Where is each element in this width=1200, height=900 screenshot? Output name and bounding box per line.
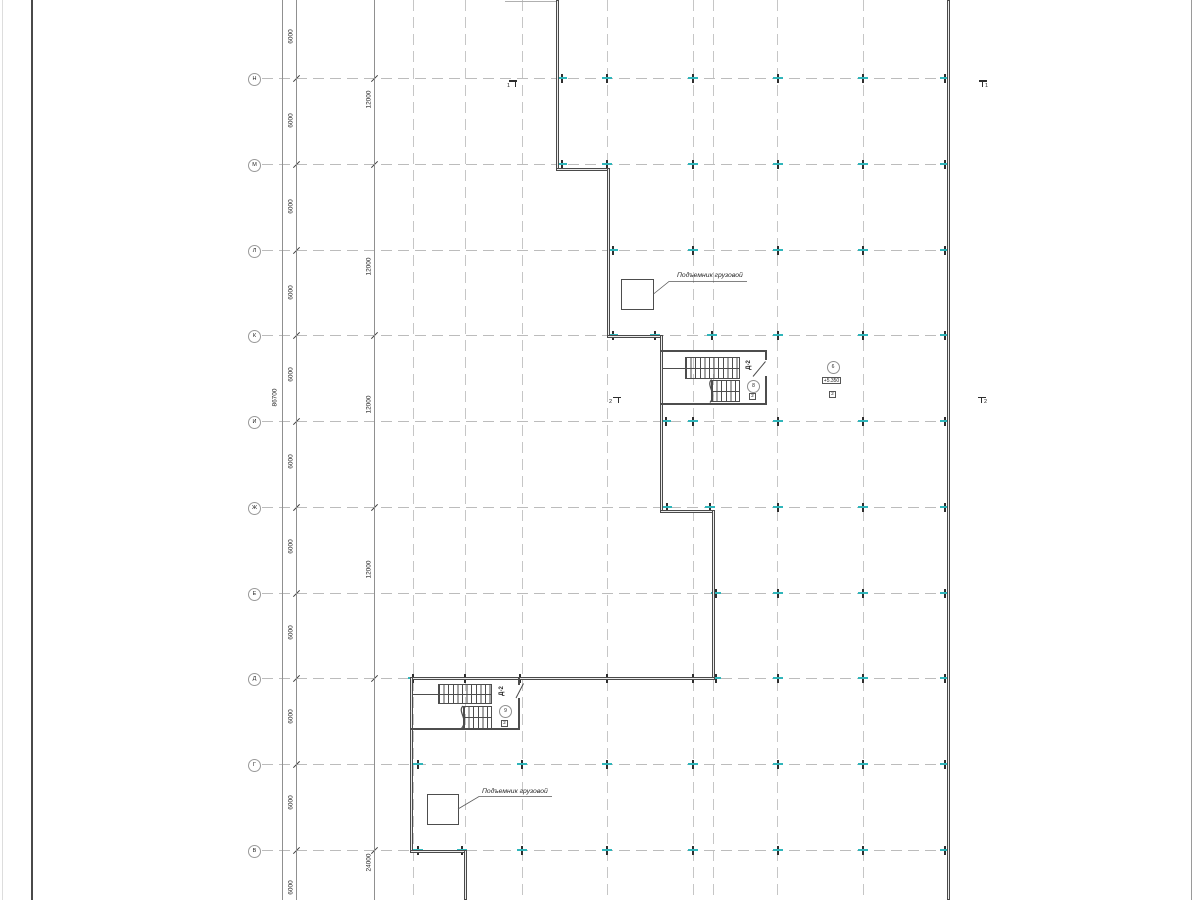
column-tick-accent	[858, 334, 868, 336]
column-tick-accent	[773, 763, 783, 765]
grid-row-line	[262, 335, 948, 336]
column-tick-accent	[688, 849, 698, 851]
stair-wall	[765, 350, 767, 360]
column-tick-accent	[773, 334, 783, 336]
dim-label-6000: 6000	[288, 698, 295, 734]
column-tick-accent	[773, 420, 783, 422]
wall-segment	[556, 168, 610, 171]
column-tick-accent	[858, 849, 868, 851]
stair-wall	[765, 376, 767, 405]
dim-label-12000: 12000	[366, 248, 373, 284]
wall-segment	[556, 0, 559, 170]
column-tick-accent	[858, 506, 868, 508]
column-tick-accent	[688, 249, 698, 251]
column-tick-accent	[705, 506, 715, 508]
structural-grid	[0, 0, 1200, 900]
section-marker-stem	[515, 81, 516, 87]
wall-segment	[410, 850, 467, 853]
section-marker-number: 1	[507, 83, 510, 89]
column-tick-accent	[608, 249, 618, 251]
section-marker-number: 2	[609, 399, 612, 405]
column-tick-accent	[773, 677, 783, 679]
wall-segment	[712, 510, 715, 680]
section-marker-stem	[982, 81, 983, 87]
wall-above-view	[505, 1, 556, 2]
dim-label-6000: 6000	[288, 274, 295, 310]
axis-circle-v: В	[248, 845, 261, 858]
dim-label-12000: 12000	[366, 81, 373, 117]
section-marker-bar	[978, 397, 986, 399]
dim-label-6000: 6000	[288, 869, 295, 900]
stair-label: Д-2	[499, 673, 505, 709]
wall-segment	[410, 677, 715, 680]
cargo-lift-shaft	[621, 279, 654, 310]
column-tick-accent	[707, 334, 717, 336]
wall-segment	[410, 677, 413, 853]
column-tick-accent	[858, 763, 868, 765]
stair-level-tag: 2	[749, 393, 756, 400]
stair-rail	[412, 694, 492, 695]
column-tick-accent	[858, 249, 868, 251]
column-tick-accent	[858, 592, 868, 594]
axis-circle-zh: Ж	[248, 502, 261, 515]
stair-number-bubble: 9	[499, 705, 512, 718]
floor-plan-sheet: Н М Л К И Ж Е Д Г В 6000 6000 6000 6000 …	[0, 0, 1200, 900]
column-tick-accent	[858, 77, 868, 79]
column-tick-accent	[602, 77, 612, 79]
stair-rail	[662, 368, 740, 369]
axis-circle-k: К	[248, 330, 261, 343]
column-tick-accent	[773, 77, 783, 79]
column-tick-accent	[602, 763, 612, 765]
node-level-tag: 2	[829, 391, 836, 398]
dim-label-12000: 12000	[366, 551, 373, 587]
column-tick-accent	[773, 506, 783, 508]
dim-chain-double-bays	[374, 0, 375, 900]
section-marker-number: 1	[985, 83, 988, 89]
stair-wall	[518, 698, 520, 731]
axis-circle-n: Н	[248, 73, 261, 86]
column-tick-accent	[602, 163, 612, 165]
stair-rail	[463, 717, 493, 718]
column-tick-accent	[688, 763, 698, 765]
column-tick-accent	[773, 163, 783, 165]
column-tick-accent	[773, 249, 783, 251]
stair-rail	[711, 391, 740, 392]
column-tick-accent	[858, 163, 868, 165]
column-tick-accent	[688, 77, 698, 79]
section-marker-stem	[981, 398, 982, 404]
grid-column-line	[413, 0, 414, 900]
stair-wall	[661, 403, 767, 405]
section-marker-bar	[979, 80, 987, 82]
dim-chain-total	[282, 0, 283, 900]
axis-circle-d: Д	[248, 673, 261, 686]
column-tick-accent	[557, 163, 567, 165]
section-marker-number: 2	[984, 399, 987, 405]
axis-circle-i: И	[248, 416, 261, 429]
column-tick-accent	[517, 763, 527, 765]
stair-level-tag: 2	[501, 720, 508, 727]
column-tick-accent	[858, 420, 868, 422]
grid-column-line	[465, 0, 466, 900]
column-tick-accent	[858, 677, 868, 679]
dim-chain-bays	[296, 0, 297, 900]
dim-label-total-86700: 86700	[272, 379, 279, 415]
stair-wall	[518, 678, 520, 685]
dim-label-6000: 6000	[288, 356, 295, 392]
cargo-lift-shaft	[427, 794, 459, 825]
column-tick-accent	[688, 420, 698, 422]
axis-circle-m: М	[248, 159, 261, 172]
dim-label-6000: 6000	[288, 784, 295, 820]
cargo-lift-annotation: Подъемник грузовой	[482, 788, 548, 795]
wall-segment	[464, 850, 467, 900]
dim-label-6000: 6000	[288, 102, 295, 138]
wall-segment	[607, 168, 610, 338]
wall-segment	[660, 510, 715, 513]
grid-column-line	[713, 0, 714, 900]
dim-label-6000: 6000	[288, 443, 295, 479]
elevation-tag: +5.350	[822, 377, 841, 384]
column-tick-accent	[773, 592, 783, 594]
column-tick-accent	[662, 506, 672, 508]
column-tick-accent	[517, 849, 527, 851]
grid-row-line	[262, 507, 948, 508]
section-marker-bar	[613, 397, 621, 399]
dim-label-12000: 12000	[366, 386, 373, 422]
column-tick-accent	[773, 849, 783, 851]
axis-circle-g: Г	[248, 759, 261, 772]
dim-label-6000: 6000	[288, 528, 295, 564]
column-tick-accent	[602, 849, 612, 851]
stair-label: Д-2	[746, 347, 752, 383]
column-tick-accent	[688, 163, 698, 165]
grid-row-line	[262, 593, 948, 594]
node-number-bubble: 6	[827, 361, 840, 374]
cargo-lift-annotation: Подъемник грузовой	[677, 272, 743, 279]
section-marker-stem	[618, 398, 619, 404]
dim-label-6000: 6000	[288, 188, 295, 224]
axis-circle-e: Е	[248, 588, 261, 601]
dim-label-24000: 24000	[366, 844, 373, 880]
stair-number-bubble: 8	[747, 380, 760, 393]
wall-segment	[660, 335, 663, 512]
dim-label-6000: 6000	[288, 18, 295, 54]
wall-segment-right	[947, 0, 951, 900]
wall-segment	[607, 335, 664, 338]
axis-circle-l: Л	[248, 245, 261, 258]
dim-label-6000: 6000	[288, 614, 295, 650]
column-tick-accent	[557, 77, 567, 79]
column-tick-accent	[413, 763, 423, 765]
